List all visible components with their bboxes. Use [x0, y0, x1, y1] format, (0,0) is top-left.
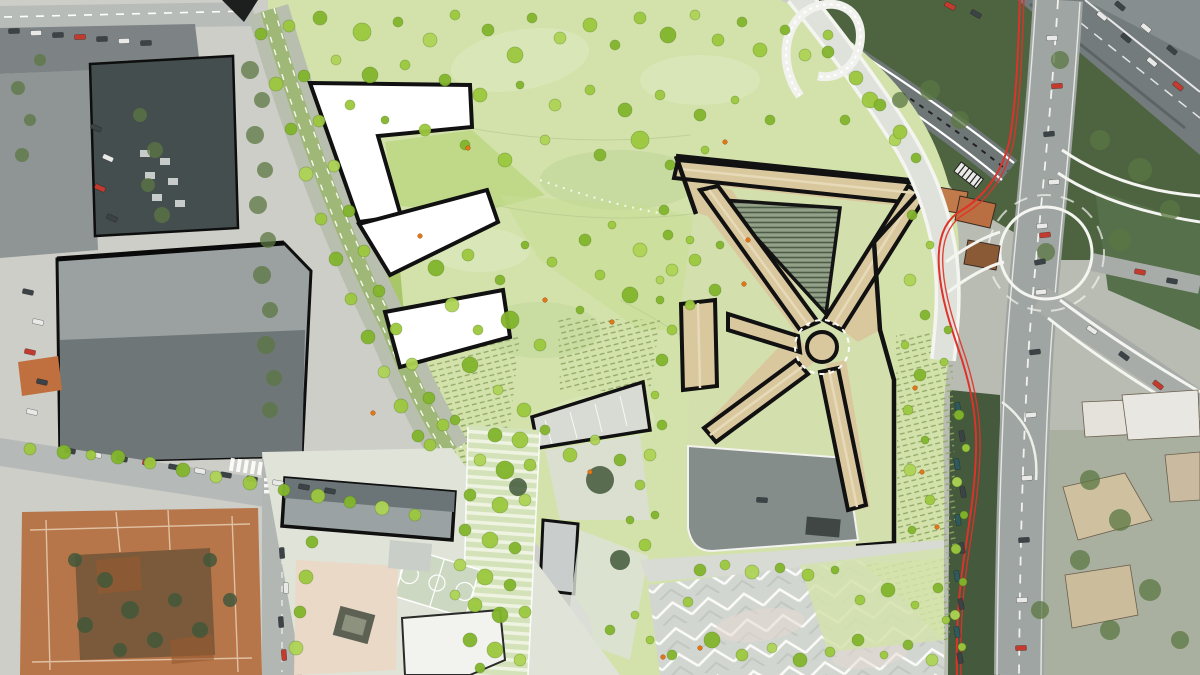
- car: [1039, 232, 1050, 238]
- car: [1036, 223, 1047, 229]
- tree: [492, 607, 508, 623]
- tree: [517, 403, 531, 417]
- tree: [501, 311, 519, 329]
- tree: [343, 205, 355, 217]
- tree: [299, 570, 313, 584]
- tree: [689, 254, 701, 266]
- south-plaza: [640, 540, 944, 675]
- tree: [737, 17, 747, 27]
- tree: [549, 99, 561, 111]
- canopy-tree: [192, 622, 208, 638]
- tree: [626, 516, 634, 524]
- tree: [487, 642, 503, 658]
- tree: [496, 461, 514, 479]
- tree: [329, 252, 343, 266]
- canopy-tree: [147, 632, 163, 648]
- tree: [540, 135, 550, 145]
- tree: [893, 125, 907, 139]
- tree: [412, 430, 424, 442]
- tree: [855, 595, 865, 605]
- lamp-dot: [588, 470, 593, 475]
- tree: [660, 27, 676, 43]
- tree: [516, 81, 524, 89]
- tree: [594, 149, 606, 161]
- tree: [690, 10, 700, 20]
- tree: [473, 88, 487, 102]
- tree: [210, 471, 222, 483]
- tree: [498, 153, 512, 167]
- tree: [313, 115, 325, 127]
- car: [118, 38, 129, 43]
- tree: [608, 221, 616, 229]
- tree: [394, 399, 408, 413]
- car: [74, 34, 85, 39]
- tree: [849, 71, 863, 85]
- lamp-dot: [661, 655, 666, 660]
- tree: [921, 436, 929, 444]
- tree: [802, 569, 814, 581]
- tree: [345, 293, 357, 305]
- tree: [694, 109, 706, 121]
- car: [756, 497, 767, 503]
- tree: [954, 410, 964, 420]
- tree: [554, 32, 566, 44]
- tree: [903, 405, 913, 415]
- aerial-tree: [253, 266, 271, 284]
- tree: [665, 160, 675, 170]
- tree: [474, 454, 486, 466]
- aerial-tree: [133, 108, 147, 122]
- tree: [358, 245, 370, 257]
- aerial-tree: [260, 232, 276, 248]
- tree: [874, 99, 886, 111]
- car: [1035, 289, 1047, 295]
- aerial-tree: [241, 61, 259, 79]
- tree: [423, 392, 435, 404]
- tree: [822, 46, 834, 58]
- tree: [666, 264, 678, 276]
- tree: [243, 476, 257, 490]
- tree: [450, 590, 460, 600]
- tree: [362, 67, 378, 83]
- car: [1016, 597, 1027, 603]
- tree: [901, 341, 909, 349]
- tree: [736, 649, 748, 661]
- tree: [86, 450, 96, 460]
- car: [1025, 412, 1036, 418]
- tree: [881, 583, 895, 597]
- tree: [576, 306, 584, 314]
- tree: [635, 480, 645, 490]
- tree: [111, 450, 125, 464]
- tree: [880, 651, 888, 659]
- terracotta-roof-small: [18, 356, 62, 396]
- canopy-tree: [203, 553, 217, 567]
- residential-block: [20, 508, 262, 675]
- tree: [644, 449, 656, 461]
- aerial-tree: [141, 178, 155, 192]
- tree: [618, 103, 632, 117]
- car: [1015, 645, 1026, 650]
- tree: [495, 275, 505, 285]
- tree: [373, 285, 385, 297]
- tree: [488, 428, 502, 442]
- tree: [509, 542, 521, 554]
- aerial-tree: [257, 336, 275, 354]
- tree: [651, 511, 659, 519]
- tree: [437, 419, 449, 431]
- car: [96, 36, 107, 41]
- paved-terrace: [388, 540, 432, 572]
- tree: [519, 606, 531, 618]
- aerial-tree: [1109, 509, 1131, 531]
- aerial-tree: [1128, 158, 1152, 182]
- tree: [775, 563, 785, 573]
- tree: [639, 539, 651, 551]
- tree: [473, 325, 483, 335]
- car: [140, 40, 151, 45]
- aerial-tree: [920, 80, 940, 100]
- tree: [306, 536, 318, 548]
- aerial-tree: [1080, 470, 1100, 490]
- tree: [908, 526, 916, 534]
- car: [1043, 131, 1054, 137]
- tree: [454, 559, 466, 571]
- tree: [328, 160, 340, 172]
- canopy-tree: [97, 572, 113, 588]
- tree: [944, 326, 952, 334]
- aerial-tree: [257, 162, 273, 178]
- canopy-tree: [223, 593, 237, 607]
- tree: [353, 23, 371, 41]
- tree: [610, 40, 620, 50]
- tree: [595, 270, 605, 280]
- tree: [631, 611, 639, 619]
- tree: [482, 24, 494, 36]
- tree: [462, 249, 474, 261]
- tree: [315, 213, 327, 225]
- tree: [514, 654, 526, 666]
- tree: [942, 616, 950, 624]
- tree: [563, 448, 577, 462]
- car: [1018, 537, 1029, 543]
- tree: [631, 131, 649, 149]
- tree: [911, 601, 919, 609]
- tree: [255, 28, 267, 40]
- canopy-tree: [113, 643, 127, 657]
- tree: [622, 287, 638, 303]
- car: [30, 30, 41, 35]
- tree: [450, 10, 460, 20]
- aerial-tree: [1160, 200, 1180, 220]
- tree: [952, 477, 962, 487]
- tree: [269, 77, 283, 91]
- aerial-tree: [11, 81, 25, 95]
- car: [283, 582, 289, 593]
- car: [1051, 83, 1062, 89]
- tree: [907, 210, 917, 220]
- tree: [951, 544, 961, 554]
- tree: [459, 524, 471, 536]
- tree: [646, 636, 654, 644]
- aerial-tree: [1171, 631, 1189, 649]
- tree: [345, 100, 355, 110]
- tree: [825, 647, 835, 657]
- tree: [313, 11, 327, 25]
- tree: [512, 432, 528, 448]
- canopy-tree: [68, 553, 82, 567]
- lamp-dot: [418, 234, 423, 239]
- tree: [926, 654, 938, 666]
- tree: [823, 30, 833, 40]
- tree: [176, 463, 190, 477]
- tree: [712, 34, 724, 46]
- tree: [289, 641, 303, 655]
- tree: [720, 560, 730, 570]
- aerial-tree: [1090, 130, 1110, 150]
- tree: [504, 579, 516, 591]
- tree: [462, 357, 478, 373]
- aerial-tree: [1037, 243, 1055, 261]
- aerial-tree: [254, 92, 270, 108]
- tree: [683, 597, 693, 607]
- tree: [406, 358, 418, 370]
- tree: [767, 643, 777, 653]
- tree: [311, 489, 325, 503]
- tree: [381, 116, 389, 124]
- tree: [278, 484, 290, 496]
- masterplan-map-stage: [0, 0, 1200, 675]
- tree: [521, 241, 529, 249]
- tree: [393, 17, 403, 27]
- tree: [285, 123, 297, 135]
- tree: [667, 325, 677, 335]
- tree: [634, 12, 646, 24]
- car: [1048, 179, 1059, 185]
- tree: [694, 564, 706, 576]
- tree: [477, 569, 493, 585]
- aerial-tree: [147, 142, 163, 158]
- canopy-tree: [121, 601, 139, 619]
- tree: [507, 47, 523, 63]
- tree: [962, 444, 970, 452]
- tree: [605, 625, 615, 635]
- tree: [439, 74, 451, 86]
- tree: [144, 457, 156, 469]
- car: [8, 28, 19, 33]
- aerial-tree: [262, 302, 278, 318]
- aerial-tree: [1109, 229, 1131, 251]
- aerial-tree: [24, 114, 36, 126]
- car: [278, 616, 284, 627]
- lamp-dot: [742, 282, 747, 287]
- tree: [831, 566, 839, 574]
- tree: [390, 323, 402, 335]
- aerial-tree: [1100, 620, 1120, 640]
- tree: [614, 454, 626, 466]
- lamp-dot: [723, 140, 728, 145]
- tree: [24, 443, 36, 455]
- aerial-tree: [246, 126, 264, 144]
- aerial-tree: [1051, 51, 1069, 69]
- aerial-tree: [249, 196, 267, 214]
- tree: [685, 300, 695, 310]
- lamp-dot: [746, 238, 751, 243]
- tree: [960, 511, 968, 519]
- car: [281, 649, 287, 660]
- aerial-tree: [154, 207, 170, 223]
- tree: [659, 205, 669, 215]
- tree: [925, 495, 935, 505]
- lamp-dot: [698, 646, 703, 651]
- aerial-tree: [1070, 550, 1090, 570]
- panopticon-hub: [807, 332, 837, 362]
- tree: [745, 565, 759, 579]
- tree: [400, 60, 410, 70]
- tree: [765, 115, 775, 125]
- tree: [731, 96, 739, 104]
- aerial-tree: [34, 54, 46, 66]
- tree: [482, 532, 498, 548]
- aerial-tree: [266, 370, 282, 386]
- canopy-tree: [509, 478, 527, 496]
- lamp-dot: [935, 525, 940, 530]
- car: [279, 547, 285, 558]
- lamp-dot: [371, 411, 376, 416]
- tree: [667, 650, 677, 660]
- tree: [852, 634, 864, 646]
- tree: [704, 632, 720, 648]
- tree: [780, 25, 790, 35]
- tree: [655, 90, 665, 100]
- tree: [585, 85, 595, 95]
- tree: [463, 633, 477, 647]
- tree: [450, 415, 460, 425]
- aerial-tree: [1031, 601, 1049, 619]
- tree: [299, 167, 313, 181]
- tree: [419, 124, 431, 136]
- tree: [904, 274, 916, 286]
- tree: [701, 146, 709, 154]
- tree: [424, 439, 436, 451]
- tree: [716, 241, 724, 249]
- tree: [294, 606, 306, 618]
- tree: [914, 369, 926, 381]
- tree: [298, 70, 310, 82]
- canopy-tree: [610, 550, 630, 570]
- tree: [283, 20, 295, 32]
- tree: [959, 578, 967, 586]
- tree: [633, 243, 647, 257]
- tree: [583, 18, 597, 32]
- tree: [840, 115, 850, 125]
- aerial-tree: [1139, 579, 1161, 601]
- canopy-tree: [77, 617, 93, 633]
- tree: [527, 13, 537, 23]
- tree: [534, 339, 546, 351]
- tree: [590, 435, 600, 445]
- parking-lot: [0, 70, 98, 258]
- tree: [540, 425, 550, 435]
- court-entrance: [805, 517, 840, 538]
- tree: [920, 310, 930, 320]
- lamp-dot: [913, 386, 918, 391]
- lamp-dot: [920, 470, 925, 475]
- aerial-tree: [262, 402, 278, 418]
- tree: [375, 501, 389, 515]
- tree: [753, 43, 767, 57]
- tree: [657, 420, 667, 430]
- tree: [926, 241, 934, 249]
- tree: [904, 464, 916, 476]
- school-building-south: [402, 610, 505, 675]
- tree: [933, 583, 943, 593]
- tree: [423, 33, 437, 47]
- tree: [656, 276, 664, 284]
- canopy-tree: [168, 593, 182, 607]
- aerial-tree: [892, 92, 908, 108]
- tree: [911, 153, 921, 163]
- tree: [663, 230, 673, 240]
- tree: [524, 459, 536, 471]
- car: [1046, 35, 1057, 41]
- tree: [940, 358, 948, 366]
- lamp-dot: [610, 320, 615, 325]
- car: [1029, 349, 1041, 355]
- tree: [464, 489, 476, 501]
- tree: [493, 385, 503, 395]
- tree: [475, 663, 485, 673]
- tree: [579, 234, 591, 246]
- masterplan-aerial-map: [0, 0, 1200, 675]
- tree: [57, 445, 71, 459]
- tree: [958, 643, 966, 651]
- tree: [468, 598, 482, 612]
- tree: [344, 496, 356, 508]
- tree: [950, 610, 960, 620]
- tree: [903, 640, 913, 650]
- lamp-dot: [543, 298, 548, 303]
- tree: [519, 494, 531, 506]
- tree: [656, 354, 668, 366]
- tree: [361, 330, 375, 344]
- tree: [709, 284, 721, 296]
- tree: [428, 260, 444, 276]
- tree: [492, 497, 508, 513]
- tree: [793, 653, 807, 667]
- tree: [378, 366, 390, 378]
- tree: [409, 509, 421, 521]
- car: [52, 32, 63, 37]
- aerial-tree: [951, 111, 969, 129]
- tree: [686, 236, 694, 244]
- tree: [331, 55, 341, 65]
- tree: [651, 391, 659, 399]
- tree: [445, 298, 459, 312]
- aerial-tree: [15, 148, 29, 162]
- tree: [547, 257, 557, 267]
- car: [1021, 475, 1032, 481]
- lamp-dot: [466, 146, 471, 151]
- tree: [799, 49, 811, 61]
- tree: [656, 296, 664, 304]
